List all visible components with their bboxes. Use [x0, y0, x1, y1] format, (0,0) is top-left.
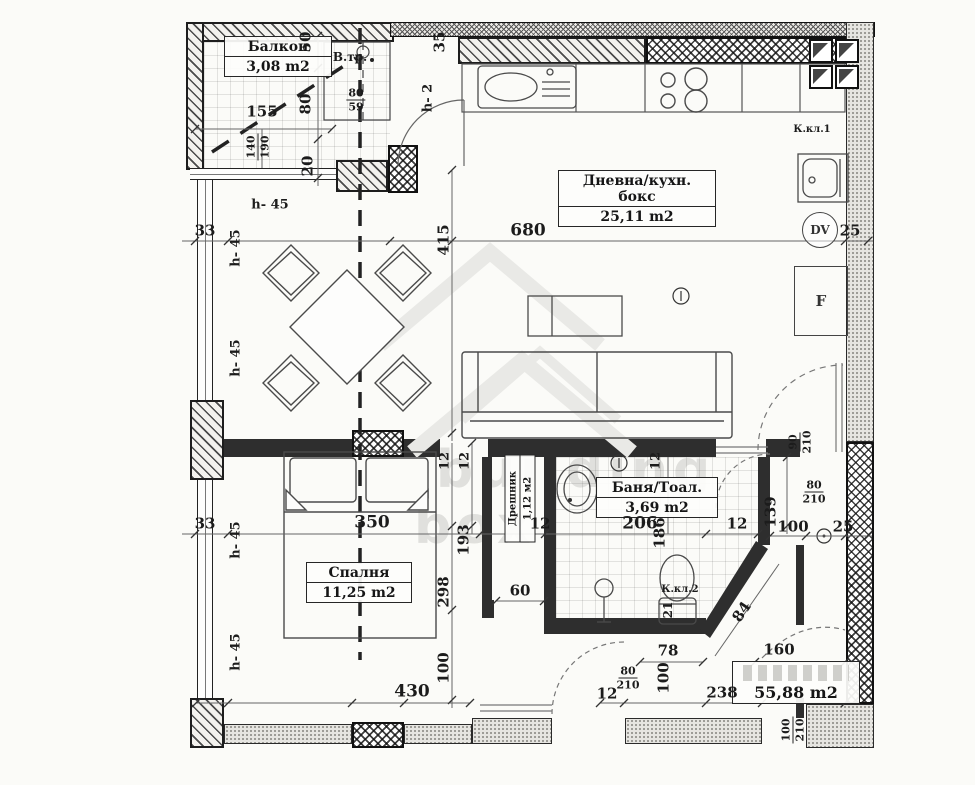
dim-25: 25	[840, 224, 861, 239]
dim-value: 210	[803, 493, 826, 506]
dim-value: 90	[787, 432, 801, 451]
room-area: 3,08 m2	[225, 57, 331, 76]
dim-value: 140	[245, 134, 259, 161]
h45-label: h- 45	[230, 521, 243, 558]
dim-430: 430	[394, 684, 430, 701]
dim-12: 12	[530, 517, 551, 532]
illegible-text	[743, 665, 849, 681]
dim-value: 190	[259, 136, 272, 159]
dim-value: 80	[804, 479, 823, 493]
dim-35: 35	[433, 32, 448, 53]
wall-bottom-bedroom-right	[404, 724, 472, 744]
room-label-living: Дневна/кухн. бокс 25,11 m2	[558, 170, 716, 227]
fridge-label: F	[816, 292, 827, 310]
dim-155: 155	[246, 105, 277, 120]
k-kl-1-label: К.кл.1	[793, 125, 830, 135]
dim-78: 78	[658, 644, 679, 659]
wall-right-bottom-block	[806, 704, 874, 748]
fridge-icon: F	[794, 266, 848, 336]
dim-100: 100	[437, 652, 452, 683]
dim-value: 210	[801, 431, 814, 454]
room-label-balcony: Балкон 3,08 m2	[224, 36, 332, 77]
room-area: 11,25 m2	[307, 583, 411, 602]
dim-80-210: 80 210	[803, 479, 826, 506]
h45-label: h- 45	[230, 633, 243, 670]
room-label-bedroom: Спалня 11,25 m2	[306, 562, 412, 603]
room-name: Дневна/кухн. бокс	[559, 171, 715, 207]
floor-plan-canvas: building box	[0, 0, 975, 785]
dim-value: 210	[794, 719, 807, 742]
wall-middle-2	[404, 439, 440, 457]
column-bottom	[352, 722, 404, 748]
h45-label: h- 45	[230, 339, 243, 376]
total-area: 55,88 m2	[733, 681, 859, 703]
dv-label: DV	[810, 223, 830, 237]
dim-value: 59	[348, 101, 363, 114]
wall-closet-left	[482, 457, 492, 615]
wall-balcony-left	[186, 22, 204, 170]
room-label-bath: Баня/Тоал. 3,69 m2	[596, 477, 718, 518]
washing-machine-icon	[798, 154, 848, 202]
column-balcony-edge	[388, 145, 418, 193]
dim-80-210: 80 210	[617, 665, 640, 692]
wall-closet-stub	[482, 600, 494, 618]
dim-33: 33	[195, 224, 216, 239]
dim-80-59: 80 59	[346, 87, 365, 114]
wall-top-hatch	[458, 37, 646, 64]
room-name: Дрешник	[506, 456, 521, 542]
dim-value: 80	[346, 87, 365, 101]
column-middle	[352, 430, 404, 457]
window-left-lower	[197, 480, 213, 698]
dim-12: 12	[439, 452, 452, 470]
dim-33: 33	[195, 517, 216, 532]
room-label-total: 55,88 m2	[732, 661, 860, 704]
dim-12: 12	[459, 452, 472, 470]
window-left-upper	[197, 180, 213, 402]
dim-298: 298	[437, 576, 452, 607]
dim-90-210: 90 210	[787, 431, 814, 454]
watermark-logo	[380, 252, 632, 452]
wall-block-left-mid	[190, 400, 224, 480]
dim-50: 50	[299, 32, 314, 53]
wall-bottom-hall-left	[472, 718, 552, 744]
dim-100: 100	[777, 520, 808, 535]
dim-100-210: 100 210	[780, 717, 807, 744]
room-area: 25,11 m2	[559, 207, 715, 226]
dim-238: 238	[706, 686, 737, 701]
dim-100: 100	[657, 662, 672, 693]
dim-80: 80	[299, 94, 314, 115]
dining-table-icon	[263, 245, 431, 411]
dim-value: 210	[617, 679, 640, 692]
h2-label: h- 2	[422, 84, 435, 112]
h45-label: h- 45	[230, 229, 243, 266]
room-name: Балкон	[225, 37, 331, 57]
dim-139: 139	[764, 496, 779, 527]
chair-icon	[263, 245, 431, 411]
wall-top-crosshatch	[646, 37, 846, 64]
dim-186: 186	[653, 517, 668, 548]
dim-12: 12	[650, 452, 663, 470]
dim-140-190: 140 190	[245, 134, 272, 161]
sofa-icon	[462, 352, 732, 438]
dim-12: 12	[597, 687, 618, 702]
wall-bottom-hall-right	[625, 718, 762, 744]
dim-680: 680	[510, 223, 546, 240]
dim-60: 60	[510, 584, 531, 599]
coffee-table-icon	[528, 296, 622, 336]
stove-icon	[661, 68, 707, 112]
wall-middle-1	[224, 439, 352, 457]
kitchen-counter-icon	[462, 64, 845, 112]
dv-appliance-icon: DV	[802, 212, 838, 248]
wall-hall-east-1	[796, 545, 804, 625]
dim-value: 100	[780, 717, 794, 744]
dim-415: 415	[437, 224, 452, 255]
room-name: Спалня	[307, 563, 411, 583]
h45-label: h- 45	[251, 199, 288, 212]
dim-193: 193	[457, 524, 472, 555]
wall-block-balcony-edge	[336, 160, 388, 192]
pillow-icon	[290, 458, 356, 502]
wall-bottom-bedroom-left	[224, 724, 352, 744]
dim-160: 160	[763, 643, 794, 658]
dim-12: 12	[727, 517, 748, 532]
wall-closet-bath	[544, 457, 556, 625]
wall-bath-bottom	[544, 618, 706, 634]
vent-shaft-label: В.тр.	[333, 51, 367, 63]
wall-top-strip	[390, 22, 875, 37]
dim-21: 21	[662, 602, 674, 619]
dim-350: 350	[354, 515, 390, 532]
k-kl-2-label: К.кл.2	[661, 585, 698, 595]
dim-25: 25	[833, 520, 854, 535]
entry-door-arc-icon	[480, 642, 624, 714]
kitchen-sink-icon	[478, 66, 576, 108]
wall-block-left-bottom	[190, 698, 224, 748]
dim-value: 80	[618, 665, 637, 679]
dim-20: 20	[301, 156, 316, 177]
room-name: Баня/Тоал.	[597, 478, 717, 498]
